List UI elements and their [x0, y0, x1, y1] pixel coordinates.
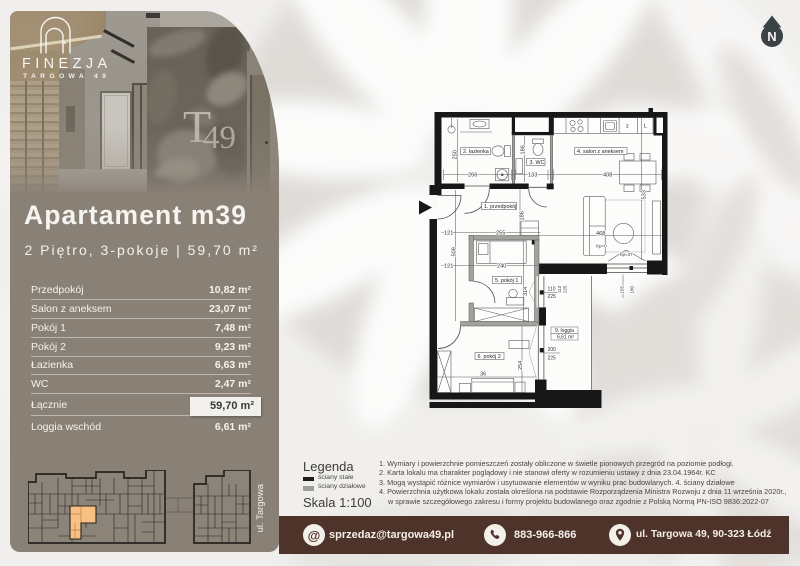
svg-text:508: 508	[452, 247, 458, 256]
svg-text:240: 240	[497, 263, 506, 269]
svg-text:225: 225	[548, 294, 557, 300]
svg-text:250: 250	[453, 150, 459, 159]
svg-text:4. salon z aneksem: 4. salon z aneksem	[577, 149, 624, 155]
svg-text:225: 225	[563, 285, 568, 293]
svg-text:468: 468	[596, 231, 605, 237]
svg-text:36: 36	[480, 372, 486, 378]
svg-text:255: 255	[496, 230, 505, 236]
svg-text:5. pokój 1: 5. pokój 1	[495, 278, 518, 284]
svg-text:121: 121	[444, 263, 453, 269]
svg-text:9. loggia: 9. loggia	[555, 328, 574, 334]
svg-text:6. pokój 2: 6. pokój 2	[478, 354, 501, 360]
svg-text:533: 533	[642, 190, 648, 199]
svg-text:3. WC: 3. WC	[530, 160, 545, 166]
svg-text:2. łazienka: 2. łazienka	[463, 149, 489, 155]
svg-text:1. przedpokój: 1. przedpokój	[484, 204, 516, 210]
svg-text:133: 133	[528, 173, 537, 179]
svg-text:z: z	[626, 124, 629, 130]
svg-text:155: 155	[620, 285, 625, 293]
svg-text:186: 186	[521, 145, 527, 154]
svg-text:hp=47: hp=47	[620, 252, 633, 257]
svg-text:110: 110	[548, 286, 556, 292]
svg-text:186: 186	[520, 211, 526, 220]
svg-text:180: 180	[630, 285, 635, 293]
svg-text:200: 200	[548, 347, 557, 353]
svg-text:113: 113	[557, 285, 562, 293]
svg-text:L: L	[644, 124, 647, 130]
svg-text:6,61 m²: 6,61 m²	[557, 335, 574, 341]
svg-text:408: 408	[603, 173, 612, 179]
svg-text:Kp=0: Kp=0	[596, 244, 607, 249]
svg-text:254: 254	[518, 361, 524, 370]
svg-text:225: 225	[548, 356, 557, 362]
svg-text:314: 314	[523, 287, 529, 296]
svg-text:121: 121	[444, 230, 453, 236]
svg-text:266: 266	[468, 173, 477, 179]
